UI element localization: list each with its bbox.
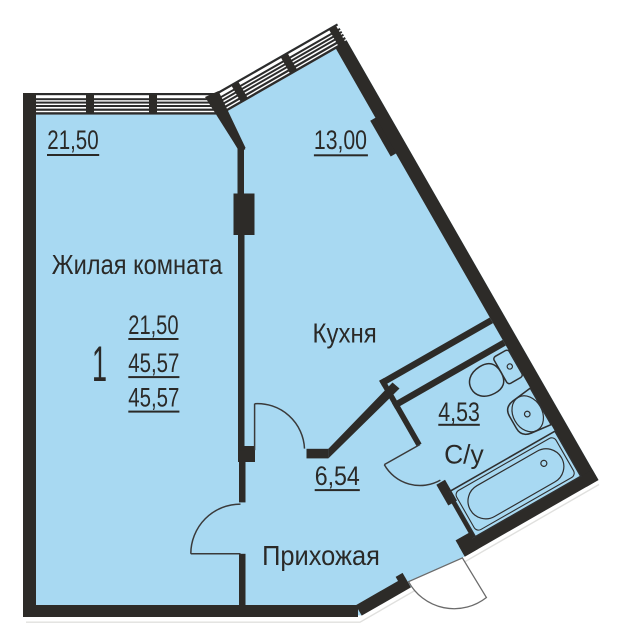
svg-text:13,00: 13,00 [314,125,367,155]
svg-text:45,57: 45,57 [128,383,179,413]
svg-text:Прихожая: Прихожая [262,540,380,571]
svg-text:Жилая комната: Жилая комната [52,249,223,280]
svg-text:21,50: 21,50 [47,125,98,155]
svg-text:21,50: 21,50 [128,310,178,340]
svg-text:6,54: 6,54 [315,461,360,491]
svg-text:1: 1 [92,336,107,392]
svg-text:Кухня: Кухня [313,317,377,348]
svg-text:45,57: 45,57 [128,348,179,378]
svg-text:С/у: С/у [444,440,484,470]
svg-text:4,53: 4,53 [438,397,480,427]
